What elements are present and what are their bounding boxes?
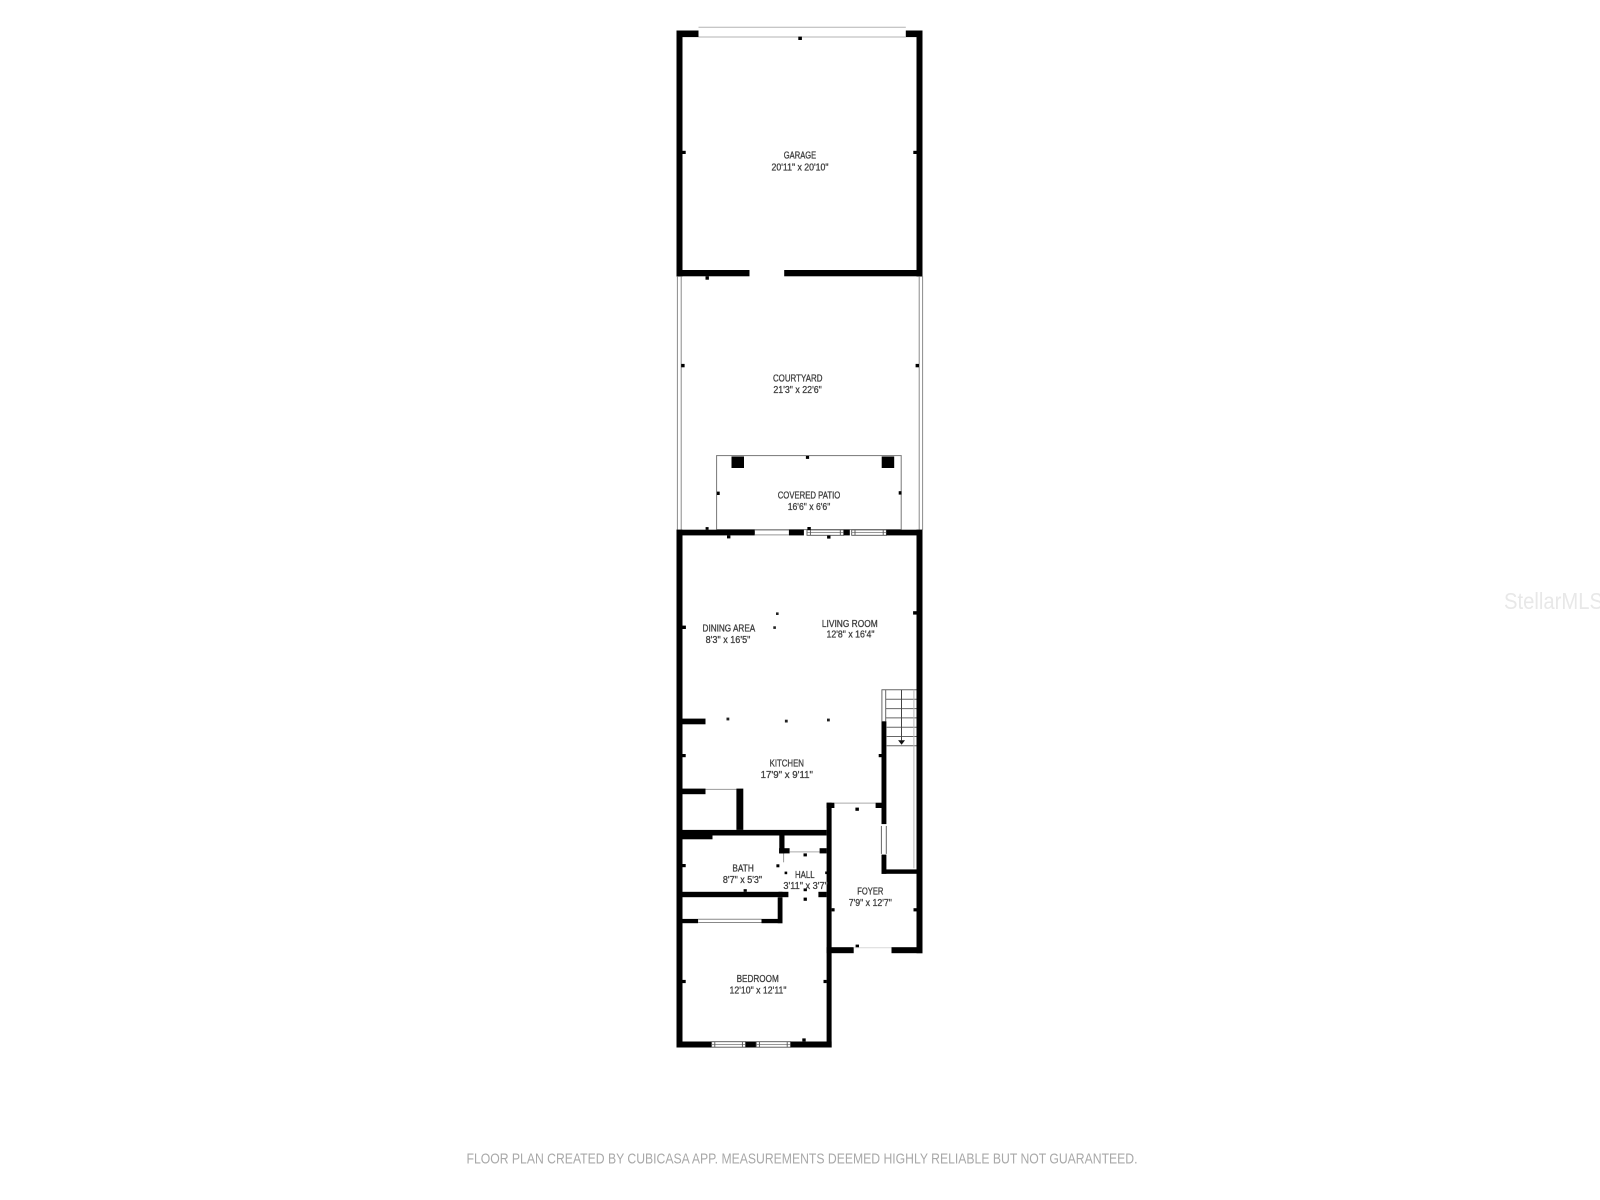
svg-text:HALL: HALL <box>795 870 815 881</box>
svg-text:FOYER: FOYER <box>857 887 883 898</box>
svg-text:8'3" x 16'5": 8'3" x 16'5" <box>706 635 751 646</box>
svg-text:8'7" x 5'3": 8'7" x 5'3" <box>723 875 763 886</box>
svg-text:12'10" x 12'11": 12'10" x 12'11" <box>730 985 787 996</box>
svg-text:DINING AREA: DINING AREA <box>703 624 756 635</box>
svg-text:3'11" x 3'7": 3'11" x 3'7" <box>783 881 828 892</box>
svg-text:GARAGE: GARAGE <box>784 150 817 161</box>
svg-text:COVERED PATIO: COVERED PATIO <box>778 491 841 502</box>
svg-text:16'6" x 6'6": 16'6" x 6'6" <box>788 502 831 513</box>
svg-text:COURTYARD: COURTYARD <box>773 373 823 384</box>
svg-text:BATH: BATH <box>732 863 753 874</box>
svg-text:KITCHEN: KITCHEN <box>770 759 804 770</box>
svg-text:17'9" x 9'11": 17'9" x 9'11" <box>761 770 814 781</box>
svg-text:21'3" x 22'6": 21'3" x 22'6" <box>773 385 822 396</box>
svg-text:LIVING ROOM: LIVING ROOM <box>822 619 878 630</box>
svg-text:12'8" x 16'4": 12'8" x 16'4" <box>827 629 875 640</box>
svg-text:20'11" x 20'10": 20'11" x 20'10" <box>772 162 829 173</box>
svg-text:StellarMLS: StellarMLS <box>1504 588 1600 614</box>
svg-text:BEDROOM: BEDROOM <box>737 974 779 985</box>
svg-text:FLOOR PLAN CREATED BY CUBICASA: FLOOR PLAN CREATED BY CUBICASA APP. MEAS… <box>467 1152 1138 1168</box>
svg-text:7'9" x 12'7": 7'9" x 12'7" <box>849 898 893 909</box>
